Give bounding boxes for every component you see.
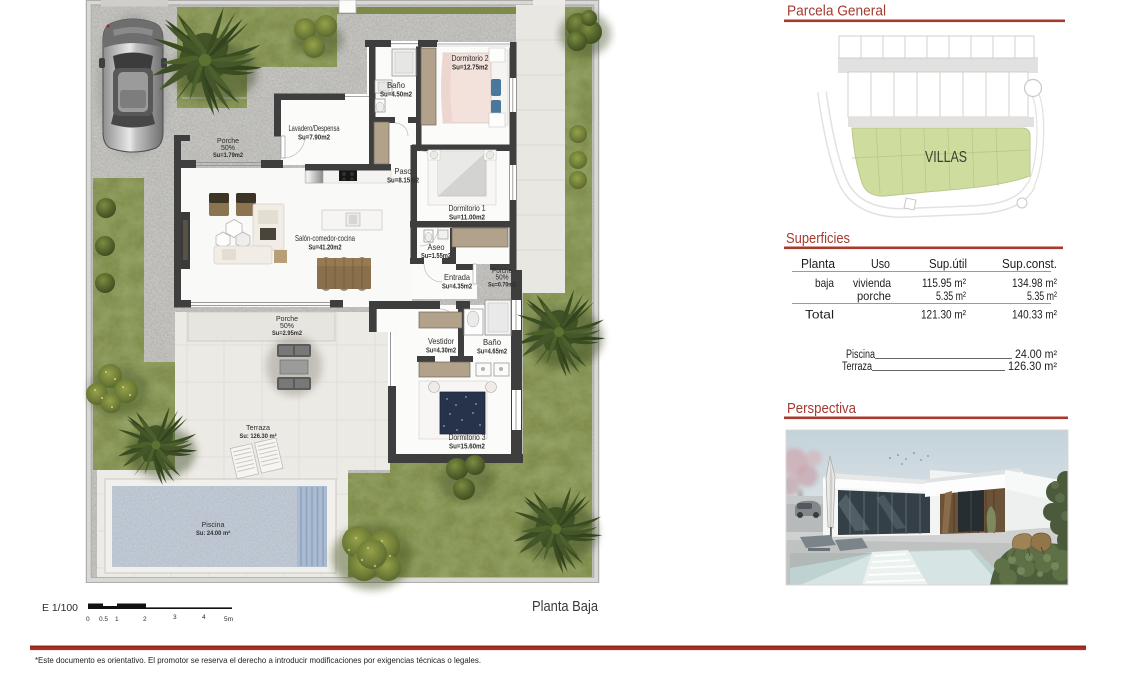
svg-text:vivienda: vivienda xyxy=(853,276,891,290)
svg-text:121.30 m²: 121.30 m² xyxy=(921,308,966,322)
svg-text:Su=1.55m2: Su=1.55m2 xyxy=(421,253,451,260)
svg-text:Su=41.20m2: Su=41.20m2 xyxy=(309,245,342,252)
svg-text:Su=1.79m2: Su=1.79m2 xyxy=(213,152,243,159)
svg-text:Terraza: Terraza xyxy=(246,423,271,432)
svg-text:0.5: 0.5 xyxy=(99,616,108,623)
svg-text:2: 2 xyxy=(143,616,147,623)
svg-text:5.35 m²: 5.35 m² xyxy=(936,289,966,303)
svg-text:Paso: Paso xyxy=(395,166,412,176)
svg-text:Planta: Planta xyxy=(801,257,835,271)
svg-text:134.98 m²: 134.98 m² xyxy=(1012,276,1057,290)
svg-text:VILLAS: VILLAS xyxy=(925,149,967,166)
svg-text:Lavadero/Despensa: Lavadero/Despensa xyxy=(289,123,340,133)
svg-text:5.35 m²: 5.35 m² xyxy=(1027,289,1057,303)
svg-text:Baño: Baño xyxy=(483,337,501,347)
svg-text:5m: 5m xyxy=(224,616,233,623)
svg-text:50%: 50% xyxy=(496,275,509,282)
svg-text:126.30 m²: 126.30 m² xyxy=(1008,361,1057,373)
svg-text:Planta Baja: Planta Baja xyxy=(532,599,599,615)
svg-text:E 1/100: E 1/100 xyxy=(42,603,78,614)
svg-text:Su=4.50m2: Su=4.50m2 xyxy=(380,92,412,99)
svg-text:baja: baja xyxy=(815,276,834,290)
svg-text:Entrada: Entrada xyxy=(444,272,470,282)
svg-text:Baño: Baño xyxy=(387,80,405,90)
svg-text:115.95 m²: 115.95 m² xyxy=(922,276,966,290)
svg-text:140.33 m²: 140.33 m² xyxy=(1012,308,1057,322)
svg-text:Salón-comedor-cocina: Salón-comedor-cocina xyxy=(295,233,355,243)
svg-text:Su=11.00m2: Su=11.00m2 xyxy=(449,215,485,222)
svg-text:4: 4 xyxy=(202,614,206,621)
svg-text:Dormitorio 2: Dormitorio 2 xyxy=(452,53,489,63)
svg-text:Su=4.35m2: Su=4.35m2 xyxy=(442,284,472,291)
svg-text:50%: 50% xyxy=(221,143,235,152)
svg-text:Su=7.90m2: Su=7.90m2 xyxy=(298,135,330,142)
svg-text:Su=2.95m2: Su=2.95m2 xyxy=(272,330,302,337)
svg-text:porche: porche xyxy=(857,289,891,303)
svg-text:50%: 50% xyxy=(280,321,294,330)
svg-text:Su: 24.00 m²: Su: 24.00 m² xyxy=(196,530,231,537)
svg-text:Su=0.70m2: Su=0.70m2 xyxy=(488,282,516,289)
svg-text:Parcela General: Parcela General xyxy=(787,4,886,20)
svg-text:24.00 m²: 24.00 m² xyxy=(1015,349,1057,361)
svg-text:Piscina: Piscina xyxy=(846,349,875,361)
svg-text:Aseo: Aseo xyxy=(428,242,445,252)
svg-text:Su=4.30m2: Su=4.30m2 xyxy=(426,348,456,355)
svg-text:Su=8.15m2: Su=8.15m2 xyxy=(387,178,419,185)
svg-text:Sup.const.: Sup.const. xyxy=(1002,257,1057,271)
svg-text:Su=15.60m2: Su=15.60m2 xyxy=(449,444,485,451)
svg-text:0: 0 xyxy=(86,616,90,623)
svg-text:Su=4.65m2: Su=4.65m2 xyxy=(477,349,507,356)
svg-text:Vestidor: Vestidor xyxy=(428,336,454,346)
svg-text:Terraza: Terraza xyxy=(842,361,872,373)
svg-text:1: 1 xyxy=(115,616,119,623)
svg-text:Su=12.75m2: Su=12.75m2 xyxy=(452,65,488,72)
svg-text:Total: Total xyxy=(805,308,834,322)
svg-text:Uso: Uso xyxy=(871,257,890,271)
svg-text:Superficies: Superficies xyxy=(786,231,850,247)
svg-text:*Este documento es orientativo: *Este documento es orientativo. El promo… xyxy=(35,655,481,665)
svg-text:Dormitorio 1: Dormitorio 1 xyxy=(449,203,486,213)
svg-text:Perspectiva: Perspectiva xyxy=(787,401,857,417)
svg-text:Sup.útil: Sup.útil xyxy=(929,257,967,271)
svg-text:Dormitorio 3: Dormitorio 3 xyxy=(449,432,486,442)
svg-text:3: 3 xyxy=(173,614,177,621)
svg-text:Piscina: Piscina xyxy=(202,520,226,529)
